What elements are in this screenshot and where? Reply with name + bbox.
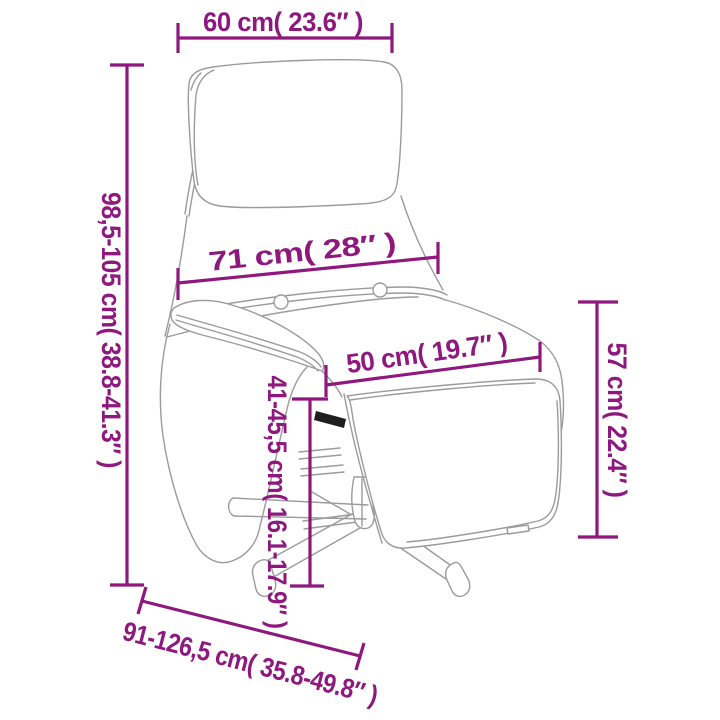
seat-height-label: 41-45,5 cm( 16.1-17.9″ ) (262, 376, 292, 629)
dimension-headrest-width: 60 cm( 23.6″ ) (178, 7, 392, 53)
diagram-canvas: 60 cm( 23.6″ ) 98,5-105 cm( 38.8-41.3″ )… (0, 0, 720, 720)
dimension-backrest-width: 71 cm( 28″ ) (178, 227, 438, 300)
rear-left-leg-cap (229, 498, 234, 516)
dimension-line (290, 399, 328, 586)
front-right-foot (446, 562, 470, 596)
hinge-dark-bar (314, 411, 346, 428)
headrest-width-label: 60 cm( 23.6″ ) (203, 7, 363, 37)
dimension-overall-height: 98,5-105 cm( 38.8-41.3″ ) (96, 65, 144, 585)
overall-depth-label: 91-126,5 cm( 35.8-49.8″ ) (120, 616, 381, 711)
backrest-button (274, 295, 288, 309)
dimension-overall-depth: 91-126,5 cm( 35.8-49.8″ ) (120, 587, 381, 711)
backrest-button (373, 283, 387, 297)
overall-height-label: 98,5-105 cm( 38.8-41.3″ ) (96, 192, 126, 468)
dimension-diagram: 60 cm( 23.6″ ) 98,5-105 cm( 38.8-41.3″ )… (0, 0, 720, 720)
mechanism-bar (299, 455, 341, 459)
mechanism-bar (301, 472, 344, 476)
mechanism-bar (299, 448, 340, 452)
rear-left-leg (233, 498, 368, 505)
footrest-height-label: 57 cm( 22.4″ ) (602, 343, 632, 498)
mechanism-bar (301, 465, 343, 469)
headrest-cushion (188, 60, 402, 208)
dimension-footrest-height: 57 cm( 22.4″ ) (578, 302, 632, 537)
